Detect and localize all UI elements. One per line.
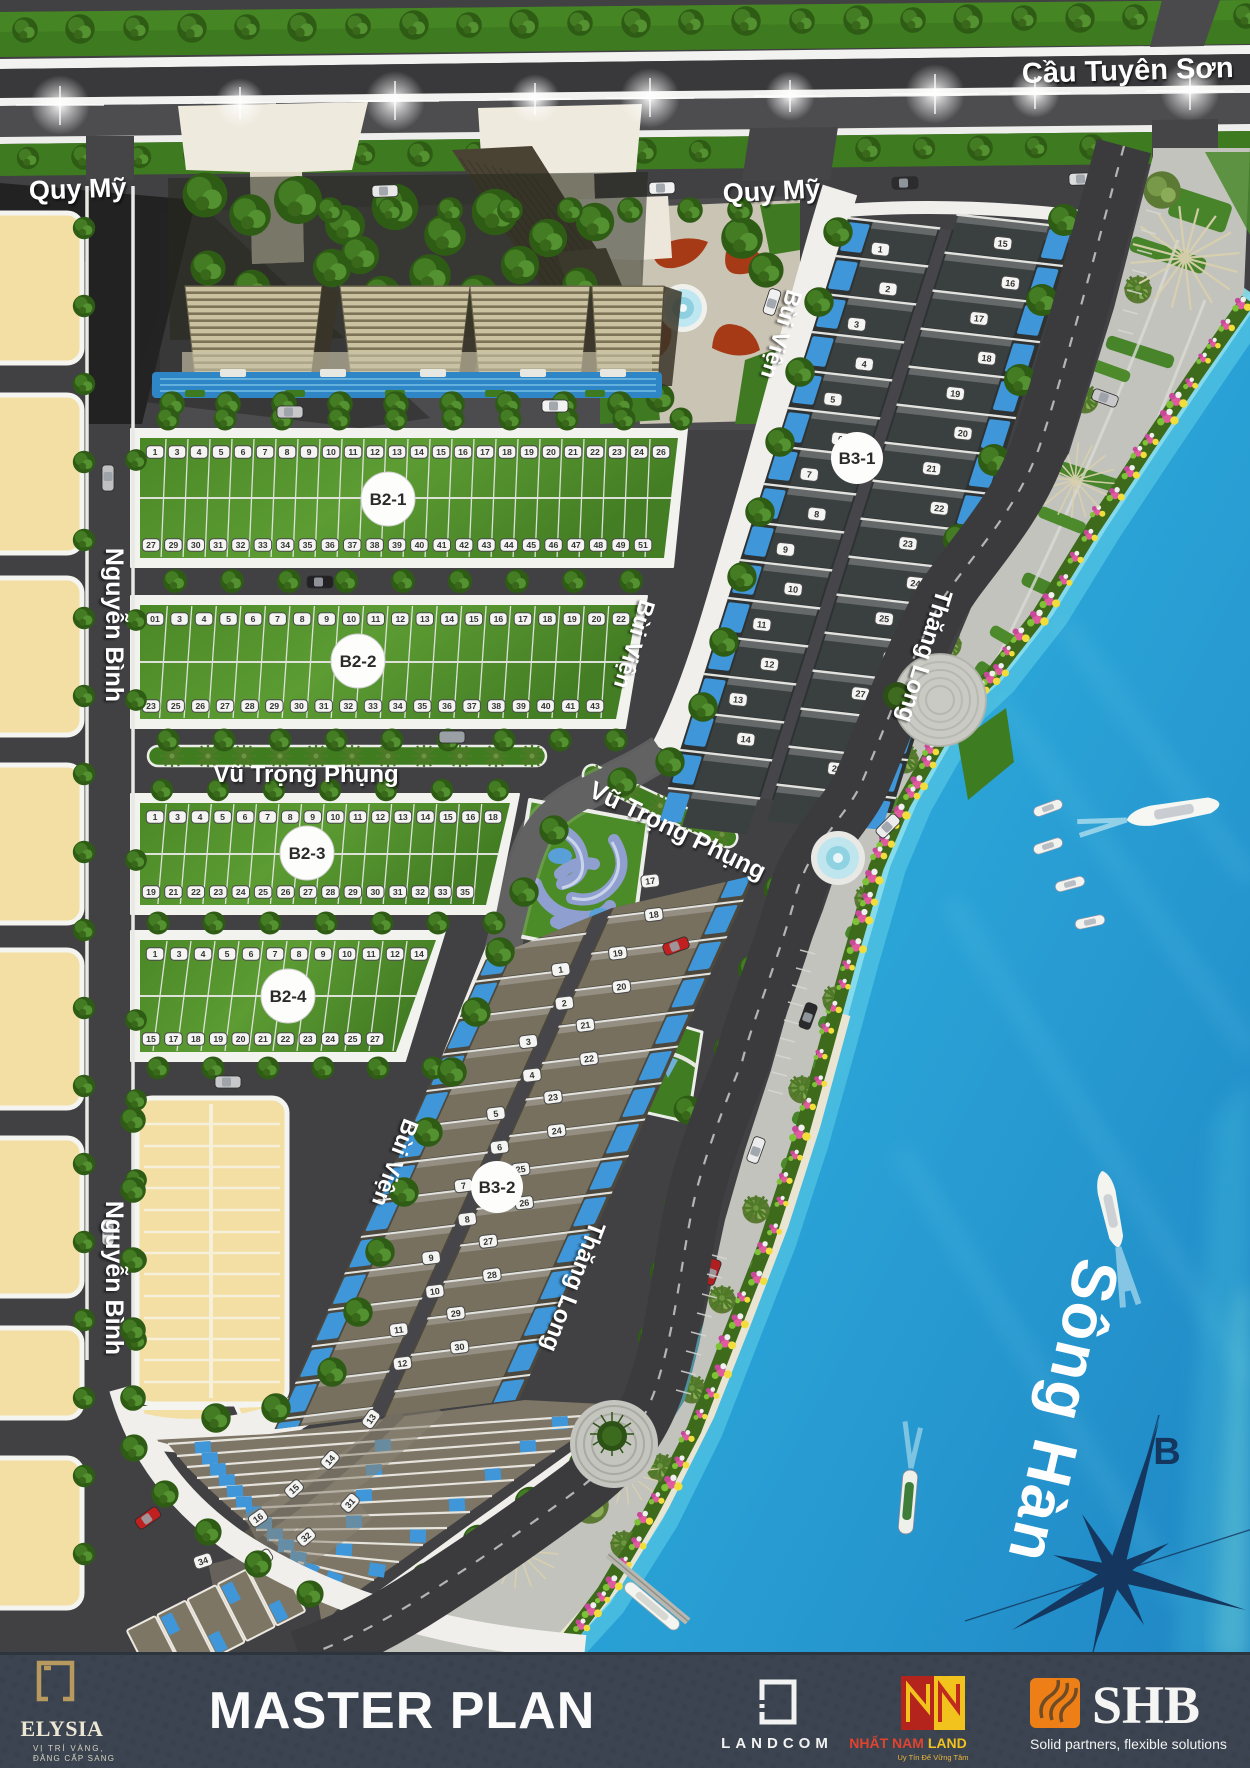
- svg-text:31: 31: [393, 887, 403, 897]
- svg-text:16: 16: [494, 614, 504, 624]
- svg-text:17: 17: [518, 614, 528, 624]
- svg-text:23: 23: [146, 701, 156, 711]
- svg-text:3: 3: [175, 812, 180, 822]
- svg-text:14: 14: [414, 447, 424, 457]
- svg-text:33: 33: [438, 887, 448, 897]
- svg-text:46: 46: [549, 540, 559, 550]
- svg-text:43: 43: [482, 540, 492, 550]
- svg-text:10: 10: [330, 812, 340, 822]
- svg-text:16: 16: [458, 447, 468, 457]
- svg-text:33: 33: [258, 540, 268, 550]
- svg-text:B2-3: B2-3: [289, 844, 326, 863]
- svg-text:51: 51: [638, 540, 648, 550]
- svg-text:8: 8: [300, 614, 305, 624]
- svg-text:22: 22: [934, 503, 945, 514]
- svg-text:11: 11: [756, 619, 767, 630]
- svg-text:4: 4: [202, 614, 207, 624]
- svg-text:23: 23: [303, 1034, 313, 1044]
- svg-text:24: 24: [634, 447, 644, 457]
- svg-text:18: 18: [488, 812, 498, 822]
- svg-text:18: 18: [648, 909, 659, 920]
- svg-text:10: 10: [342, 949, 352, 959]
- svg-text:7: 7: [273, 949, 278, 959]
- svg-text:47: 47: [571, 540, 581, 550]
- svg-text:28: 28: [486, 1270, 497, 1281]
- svg-text:20: 20: [592, 614, 602, 624]
- svg-text:36: 36: [442, 701, 452, 711]
- svg-text:21: 21: [580, 1020, 591, 1031]
- svg-text:19: 19: [612, 948, 623, 959]
- svg-text:42: 42: [459, 540, 469, 550]
- svg-text:9: 9: [321, 949, 326, 959]
- svg-text:22: 22: [616, 614, 626, 624]
- svg-text:37: 37: [347, 540, 357, 550]
- svg-text:18: 18: [191, 1034, 201, 1044]
- svg-text:21: 21: [258, 1034, 268, 1044]
- svg-text:5: 5: [226, 614, 231, 624]
- svg-text:3: 3: [175, 447, 180, 457]
- svg-text:14: 14: [740, 734, 751, 745]
- svg-text:Quy Mỹ: Quy Mỹ: [28, 172, 127, 205]
- svg-text:11: 11: [366, 949, 375, 959]
- svg-text:31: 31: [319, 701, 329, 711]
- svg-text:19: 19: [524, 447, 534, 457]
- svg-text:25: 25: [348, 1034, 358, 1044]
- svg-text:15: 15: [469, 614, 479, 624]
- svg-text:48: 48: [593, 540, 603, 550]
- svg-text:3: 3: [177, 949, 182, 959]
- svg-text:29: 29: [269, 701, 279, 711]
- svg-text:24: 24: [325, 1034, 335, 1044]
- svg-text:1: 1: [153, 447, 158, 457]
- svg-text:16: 16: [1005, 278, 1016, 289]
- svg-text:17: 17: [480, 447, 490, 457]
- svg-text:ĐẲNG CẤP SANG: ĐẲNG CẤP SANG: [33, 1753, 115, 1763]
- svg-text:38: 38: [491, 701, 501, 711]
- svg-text:19: 19: [567, 614, 577, 624]
- svg-text:B2-2: B2-2: [340, 652, 377, 671]
- svg-text:28: 28: [245, 701, 255, 711]
- svg-text:27: 27: [483, 1236, 494, 1247]
- svg-text:5: 5: [219, 447, 224, 457]
- svg-text:B3-1: B3-1: [839, 449, 876, 468]
- svg-text:29: 29: [348, 887, 358, 897]
- svg-text:Vũ Trọng Phụng: Vũ Trọng Phụng: [213, 761, 398, 788]
- svg-text:11: 11: [348, 447, 357, 457]
- svg-text:VỊ TRÍ VÀNG,: VỊ TRÍ VÀNG,: [33, 1744, 104, 1753]
- svg-text:6: 6: [251, 614, 256, 624]
- svg-text:B2-1: B2-1: [370, 490, 407, 509]
- svg-text:13: 13: [392, 447, 402, 457]
- svg-text:33: 33: [368, 701, 378, 711]
- svg-text:14: 14: [421, 812, 431, 822]
- svg-text:23: 23: [547, 1092, 558, 1103]
- svg-text:MASTER PLAN: MASTER PLAN: [209, 1682, 596, 1740]
- svg-text:32: 32: [415, 887, 425, 897]
- svg-text:5: 5: [225, 949, 230, 959]
- svg-text:14: 14: [444, 614, 454, 624]
- svg-text:5: 5: [220, 812, 225, 822]
- svg-text:20: 20: [546, 447, 556, 457]
- svg-text:8: 8: [285, 447, 290, 457]
- svg-text:38: 38: [370, 540, 380, 550]
- svg-text:Quy Mỹ: Quy Mỹ: [722, 173, 821, 208]
- svg-text:Solid partners, flexible solut: Solid partners, flexible solutions: [1030, 1736, 1227, 1752]
- svg-text:21: 21: [568, 447, 578, 457]
- svg-text:B3-2: B3-2: [479, 1178, 516, 1197]
- svg-text:4: 4: [198, 812, 203, 822]
- svg-text:19: 19: [146, 887, 156, 897]
- svg-text:17: 17: [973, 313, 984, 324]
- svg-text:22: 22: [281, 1034, 291, 1044]
- svg-text:19: 19: [950, 388, 961, 399]
- svg-text:29: 29: [450, 1308, 461, 1319]
- svg-text:12: 12: [764, 659, 775, 670]
- svg-text:34: 34: [280, 540, 290, 550]
- svg-text:23: 23: [902, 538, 913, 549]
- svg-text:15: 15: [436, 447, 446, 457]
- svg-text:27: 27: [303, 887, 313, 897]
- svg-text:39: 39: [516, 701, 526, 711]
- svg-text:24: 24: [236, 887, 246, 897]
- svg-text:37: 37: [467, 701, 477, 711]
- svg-text:6: 6: [243, 812, 248, 822]
- svg-text:9: 9: [307, 447, 312, 457]
- svg-text:30: 30: [454, 1342, 465, 1353]
- svg-text:26: 26: [281, 887, 291, 897]
- svg-text:LANDCOM: LANDCOM: [721, 1735, 833, 1752]
- svg-text:26: 26: [519, 1197, 530, 1208]
- svg-text:12: 12: [375, 812, 385, 822]
- svg-text:40: 40: [541, 701, 551, 711]
- svg-text:10: 10: [346, 614, 356, 624]
- svg-text:35: 35: [460, 887, 470, 897]
- svg-text:10: 10: [788, 584, 799, 595]
- svg-text:25: 25: [879, 613, 890, 624]
- svg-text:11: 11: [353, 812, 362, 822]
- svg-text:7: 7: [265, 812, 270, 822]
- svg-text:26: 26: [195, 701, 205, 711]
- svg-text:41: 41: [437, 540, 447, 550]
- svg-text:B: B: [1153, 1431, 1180, 1473]
- svg-text:20: 20: [236, 1034, 246, 1044]
- svg-text:12: 12: [370, 447, 380, 457]
- svg-text:24: 24: [551, 1125, 562, 1136]
- svg-text:39: 39: [392, 540, 402, 550]
- svg-text:6: 6: [249, 949, 254, 959]
- svg-text:31: 31: [213, 540, 223, 550]
- svg-text:B2-4: B2-4: [270, 987, 307, 1006]
- svg-text:29: 29: [169, 540, 179, 550]
- svg-text:45: 45: [526, 540, 536, 550]
- svg-text:30: 30: [294, 701, 304, 711]
- svg-text:Uy Tín Để Vững Tâm: Uy Tín Để Vững Tâm: [897, 1753, 968, 1762]
- svg-text:30: 30: [370, 887, 380, 897]
- svg-text:40: 40: [415, 540, 425, 550]
- svg-text:17: 17: [645, 876, 656, 887]
- svg-text:13: 13: [733, 694, 744, 705]
- svg-text:41: 41: [565, 701, 575, 711]
- svg-text:22: 22: [583, 1053, 594, 1064]
- svg-text:20: 20: [616, 981, 627, 992]
- svg-text:32: 32: [236, 540, 246, 550]
- svg-text:16: 16: [466, 812, 476, 822]
- svg-text:3: 3: [177, 614, 182, 624]
- svg-text:13: 13: [398, 812, 408, 822]
- svg-text:27: 27: [146, 540, 156, 550]
- svg-text:36: 36: [325, 540, 335, 550]
- svg-text:18: 18: [502, 447, 512, 457]
- svg-text:7: 7: [263, 447, 268, 457]
- svg-text:23: 23: [612, 447, 622, 457]
- svg-text:13: 13: [420, 614, 430, 624]
- svg-text:7: 7: [275, 614, 280, 624]
- svg-text:9: 9: [324, 614, 329, 624]
- svg-text:23: 23: [213, 887, 223, 897]
- svg-text:15: 15: [997, 238, 1008, 249]
- svg-text:30: 30: [191, 540, 201, 550]
- svg-text:1: 1: [153, 812, 158, 822]
- svg-text:01: 01: [150, 614, 160, 624]
- svg-text:8: 8: [297, 949, 302, 959]
- svg-text:4: 4: [197, 447, 202, 457]
- svg-text:8: 8: [288, 812, 293, 822]
- svg-text:SHB: SHB: [1092, 1675, 1200, 1735]
- svg-text:27: 27: [855, 688, 866, 699]
- svg-text:18: 18: [543, 614, 553, 624]
- svg-text:19: 19: [213, 1034, 223, 1044]
- svg-text:27: 27: [370, 1034, 380, 1044]
- svg-text:Nguyễn Bình: Nguyễn Bình: [100, 548, 130, 702]
- svg-text:Nguyễn Bình: Nguyễn Bình: [100, 1201, 130, 1355]
- svg-text:12: 12: [395, 614, 405, 624]
- svg-text:25: 25: [258, 887, 268, 897]
- svg-text:34: 34: [393, 701, 403, 711]
- svg-text:21: 21: [169, 887, 179, 897]
- svg-text:6: 6: [241, 447, 246, 457]
- svg-text:27: 27: [220, 701, 230, 711]
- svg-text:20: 20: [957, 428, 968, 439]
- svg-text:21: 21: [926, 463, 937, 474]
- svg-text:1: 1: [153, 949, 158, 959]
- svg-text:44: 44: [504, 540, 514, 550]
- svg-text:4: 4: [201, 949, 206, 959]
- svg-text:22: 22: [590, 447, 600, 457]
- svg-text:12: 12: [390, 949, 400, 959]
- svg-text:10: 10: [326, 447, 336, 457]
- svg-text:43: 43: [590, 701, 600, 711]
- svg-text:11: 11: [394, 1324, 405, 1335]
- svg-text:12: 12: [397, 1358, 408, 1369]
- svg-text:15: 15: [443, 812, 453, 822]
- svg-text:15: 15: [146, 1034, 156, 1044]
- svg-text:10: 10: [429, 1286, 440, 1297]
- svg-text:28: 28: [326, 887, 336, 897]
- svg-text:9: 9: [310, 812, 315, 822]
- svg-text:ELYSIA: ELYSIA: [21, 1716, 104, 1741]
- svg-text:11: 11: [371, 614, 380, 624]
- svg-text:32: 32: [343, 701, 353, 711]
- svg-text:18: 18: [981, 353, 992, 364]
- svg-text:17: 17: [169, 1034, 179, 1044]
- svg-text:35: 35: [417, 701, 427, 711]
- svg-text:25: 25: [171, 701, 181, 711]
- svg-text:49: 49: [616, 540, 626, 550]
- svg-text:14: 14: [414, 949, 424, 959]
- svg-text:22: 22: [191, 887, 201, 897]
- svg-text:35: 35: [303, 540, 313, 550]
- svg-text:26: 26: [656, 447, 666, 457]
- svg-text:NHẤT NAM LAND: NHẤT NAM LAND: [849, 1735, 966, 1751]
